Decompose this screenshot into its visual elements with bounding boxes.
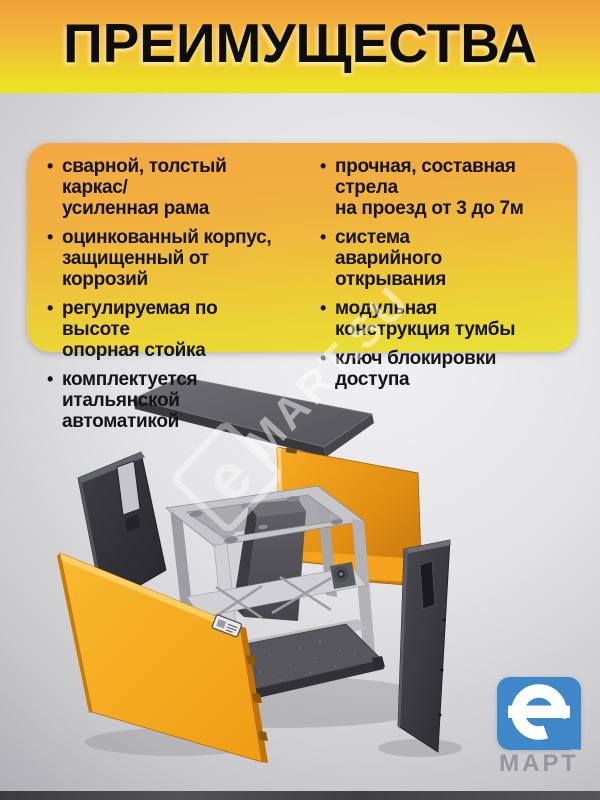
list-item: • прочная, составная стрела на проезд от… [320, 156, 557, 219]
poster-page: ПРЕИМУЩЕСТВА • сварной, толстый каркас/ … [0, 0, 600, 800]
list-item: • оцинкованный корпус, защищенный от кор… [47, 227, 284, 290]
e-mart-logo-icon [497, 677, 581, 750]
header-band: ПРЕИМУЩЕСТВА [0, 0, 600, 93]
bullet-icon: • [47, 156, 53, 219]
brand-name: МАРТ [490, 750, 588, 778]
bullet-icon: • [320, 227, 326, 290]
bottom-strip [0, 791, 600, 800]
advantage-text: оцинкованный корпус, защищенный от корро… [62, 227, 284, 290]
page-title: ПРЕИМУЩЕСТВА [0, 0, 600, 73]
list-item: • регулируемая по высоте опорная стойка [47, 298, 284, 361]
list-item: • сварной, толстый каркас/ усиленная рам… [47, 156, 284, 219]
advantage-text: система аварийного открывания [335, 227, 557, 290]
brand-logo [497, 677, 581, 750]
advantage-text: прочная, составная стрела на проезд от 3… [335, 156, 557, 219]
advantages-list-right: • прочная, составная стрела на проезд от… [320, 156, 557, 440]
bullet-icon: • [320, 298, 326, 340]
advantages-list-left: • сварной, толстый каркас/ усиленная рам… [47, 156, 284, 440]
list-item: • система аварийного открывания [320, 227, 557, 290]
advantages-card: • сварной, толстый каркас/ усиленная рам… [27, 143, 577, 352]
bullet-icon: • [47, 298, 53, 361]
bullet-icon: • [47, 227, 53, 290]
bullet-icon: • [320, 156, 326, 219]
advantage-text: регулируемая по высоте опорная стойка [62, 298, 284, 361]
advantage-text: сварной, толстый каркас/ усиленная рама [62, 156, 284, 219]
bullet-icon: • [47, 369, 53, 432]
gear-motor [330, 562, 356, 589]
right-door-panel [398, 540, 451, 752]
